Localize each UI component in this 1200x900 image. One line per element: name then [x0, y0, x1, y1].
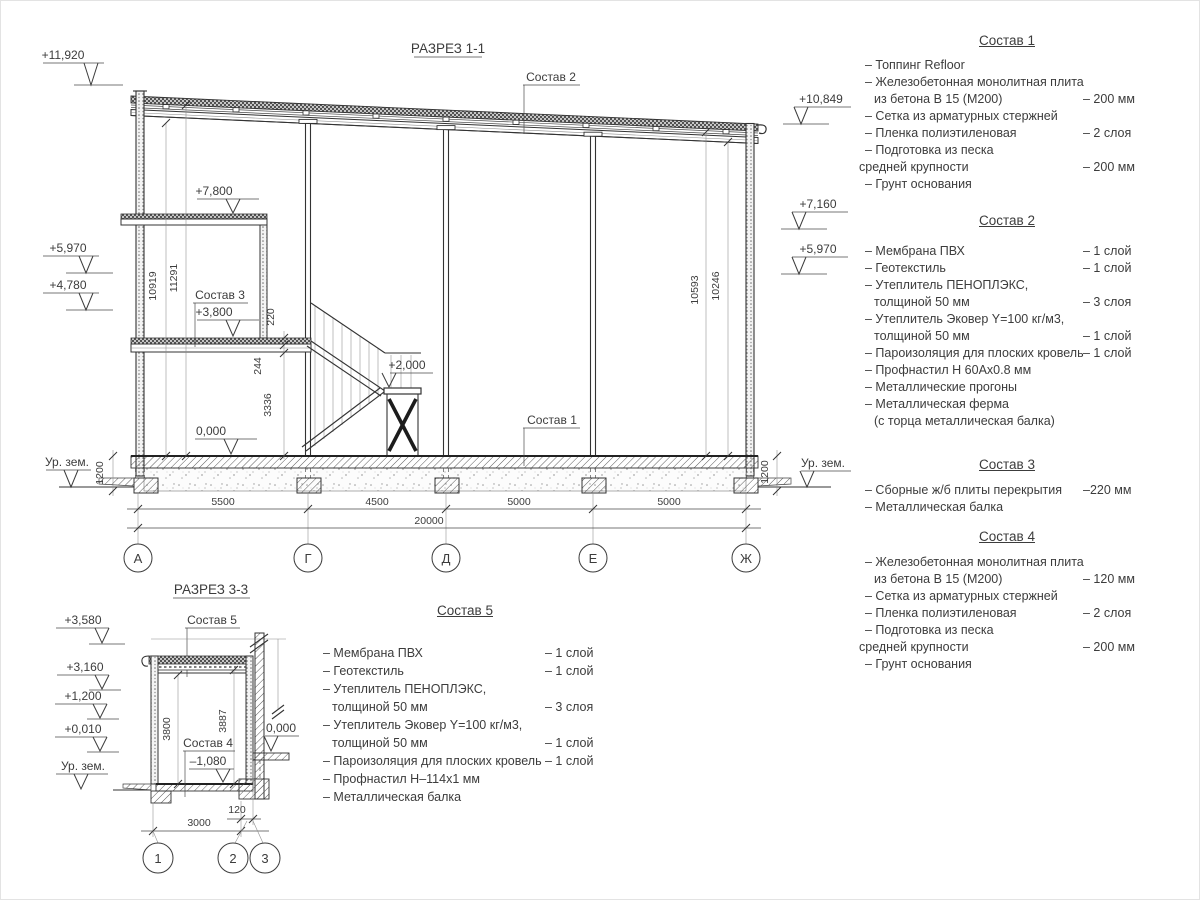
annex-gutter-hook [142, 656, 149, 666]
list-item: толщиной 50 мм– 3 слоя [317, 698, 613, 716]
ground-label-left: Ур. зем. [45, 455, 89, 469]
section-3-3-title: РАЗРЕЗ 3-3 [174, 582, 248, 597]
leader-sostav5: Состав 5 [187, 613, 237, 627]
section-1-1: РАЗРЕЗ 1-1 [42, 41, 851, 572]
stair-flight-lower [306, 392, 384, 451]
wall-right [746, 124, 754, 477]
elev-3800: +3,800 [195, 305, 232, 319]
annex-footing-right [239, 779, 269, 799]
section-1-1-title: РАЗРЕЗ 1-1 [411, 41, 485, 56]
list-item: – Сетка из арматурных стержней [859, 588, 1155, 605]
list-item: – Подготовка из песка [859, 142, 1155, 159]
elev-left-5970: +5,970 [49, 241, 86, 255]
landing-platform [384, 388, 421, 394]
axis-label-g: Г [304, 551, 311, 566]
dim-4500: 4500 [365, 496, 389, 508]
main-floor-stub [253, 753, 289, 760]
axis-label-2: 2 [229, 851, 236, 866]
axis-label-e: Е [589, 551, 598, 566]
list-item: – Пленка полиэтиленовая– 2 слоя [859, 605, 1155, 622]
list-item: толщиной 50 мм– 1 слой [317, 734, 613, 752]
annex-structure [113, 633, 289, 803]
ground-floor [59, 456, 831, 493]
list-item: – Утеплитель Эковер Y=100 кг/м3, [859, 311, 1155, 328]
list-item: – Геотекстиль– 1 слой [317, 662, 613, 680]
wall-left [136, 91, 144, 476]
list-item: – Геотекстиль– 1 слой [859, 260, 1155, 277]
elevations-right-s11: +10,849 +7,160 +5,970 Ур. зем. 1200 [759, 92, 851, 496]
ground-label-right: Ур. зем. [801, 456, 845, 470]
list-item: – Пароизоляция для плоских кровель– 1 сл… [859, 345, 1155, 362]
composition-4-title: Состав 4 [859, 529, 1155, 544]
dim-10246: 10246 [710, 271, 722, 300]
list-item: из бетона В 15 (М200)– 200 мм [859, 91, 1155, 108]
composition-1-list: Состав 1 – Топпинг Refloor – Железобетон… [859, 33, 1155, 193]
list-item: – Утеплитель ПЕНОПЛЭКС, [317, 680, 613, 698]
list-item: – Грунт основания [859, 176, 1155, 193]
list-item: – Грунт основания [859, 656, 1155, 673]
composition-2-list: Состав 2 – Мембрана ПВХ– 1 слой – Геотек… [859, 213, 1155, 430]
ground-label-s33: Ур. зем. [61, 759, 105, 773]
list-item: средней крупности– 200 мм [859, 159, 1155, 176]
list-item: – Мембрана ПВХ– 1 слой [859, 243, 1155, 260]
list-item: – Металлическая ферма [859, 396, 1155, 413]
elev-1200: +1,200 [64, 689, 101, 703]
axis-label-1: 1 [154, 851, 161, 866]
list-item: толщиной 50 мм– 1 слой [859, 328, 1155, 345]
dim-5500: 5500 [211, 496, 235, 508]
list-item: – Пленка полиэтиленовая– 2 слоя [859, 125, 1155, 142]
elev-right-5970: +5,970 [799, 242, 836, 256]
composition-2-title: Состав 2 [859, 213, 1155, 228]
main-building-wall [255, 633, 264, 799]
leader-sostav1: Состав 1 [527, 413, 577, 427]
annex-roof [149, 656, 253, 664]
dim-120: 120 [228, 804, 246, 816]
column-d [437, 126, 455, 456]
elev-m1080: –1,080 [190, 754, 227, 768]
dim-220: 220 [265, 308, 277, 326]
vertical-dims-s11: 10919 11291 10593 10246 220 244 3336 [147, 101, 732, 460]
list-item: – Металлические прогоны [859, 379, 1155, 396]
annex-wall-left [151, 656, 158, 784]
list-item: – Мембрана ПВХ– 1 слой [317, 644, 613, 662]
list-item: – Утеплитель ПЕНОПЛЭКС, [859, 277, 1155, 294]
list-item: – Пароизоляция для плоских кровель– 1 сл… [317, 752, 613, 770]
elev-11920: +11,920 [42, 48, 85, 62]
leader-sostav2: Состав 2 [526, 70, 576, 84]
dim-10593: 10593 [689, 275, 701, 304]
list-item: – Профнастил Н 60Ах0.8 мм [859, 362, 1155, 379]
bottom-dims-s11: 5500 4500 5000 5000 20000 А [124, 493, 761, 572]
column-e [584, 132, 602, 456]
composition-5-list: Состав 5 – Мембрана ПВХ– 1 слой – Геотек… [317, 603, 613, 806]
list-item: толщиной 50 мм– 3 слоя [859, 294, 1155, 311]
dim-5000a: 5000 [507, 496, 531, 508]
composition-1-title: Состав 1 [859, 33, 1155, 48]
railing-top [311, 303, 385, 353]
dim-3800: 3800 [161, 717, 173, 741]
roof-gutter-hook [758, 125, 766, 134]
dim-1200-right: 1200 [759, 460, 771, 484]
dim-3887: 3887 [217, 709, 229, 733]
list-item: средней крупности– 200 мм [859, 639, 1155, 656]
elev-0000: 0,000 [196, 424, 226, 438]
list-item: – Металлическая балка [859, 499, 1155, 516]
list-item: – Железобетонная монолитная плита [859, 74, 1155, 91]
list-item: – Подготовка из песка [859, 622, 1155, 639]
grid-axes-s11: А Г Д Е Ж [124, 544, 760, 572]
annex-floor [156, 784, 253, 791]
dim-10919: 10919 [147, 271, 159, 300]
composition-3-list: Состав 3 – Сборные ж/б плиты перекрытия–… [859, 457, 1155, 516]
list-item: – Утеплитель Эковер Y=100 кг/м3, [317, 716, 613, 734]
stairs [302, 303, 421, 456]
elev-0000-s33: 0,000 [266, 721, 296, 735]
elev-3160: +3,160 [66, 660, 103, 674]
axis-label-zh: Ж [740, 551, 752, 566]
column-g [299, 119, 317, 456]
walls-columns [133, 91, 754, 476]
elev-right-7160: +7,160 [799, 197, 836, 211]
dim-1200-left: 1200 [94, 461, 106, 485]
list-item: – Сборные ж/б плиты перекрытия–220 мм [859, 482, 1155, 499]
floor-slab [131, 456, 758, 468]
axis-label-d: Д [442, 551, 451, 566]
dim-11291: 11291 [168, 264, 180, 293]
elev-7800: +7,800 [195, 184, 232, 198]
list-item: – Сетка из арматурных стержней [859, 108, 1155, 125]
annex-apron [123, 784, 151, 790]
list-item: (с торца металлическая балка) [859, 413, 1155, 430]
leader-sostav4: Состав 4 [183, 736, 233, 750]
elevations-left-s11: +11,920 +5,970 +4,780 Ур. зем. 1200 [42, 48, 123, 496]
axis-label-a: А [134, 551, 143, 566]
leader-sostav3: Состав 3 [195, 288, 245, 302]
dim-3000: 3000 [187, 817, 211, 829]
annex-wall-right [246, 656, 253, 784]
list-item: – Железобетонная монолитная плита [859, 554, 1155, 571]
dim-20000: 20000 [414, 515, 443, 527]
dim-3336: 3336 [262, 393, 274, 417]
elev-0010: +0,010 [64, 722, 101, 736]
elev-right-10849: +10,849 [799, 92, 843, 106]
list-item: – Топпинг Refloor [859, 57, 1155, 74]
list-item: из бетона В 15 (М200)– 120 мм [859, 571, 1155, 588]
composition-5-title: Состав 5 [317, 603, 613, 618]
vertical-dims-s33: 3800 3887 [161, 666, 238, 788]
elev-2000: +2,000 [388, 358, 425, 372]
dim-244: 244 [252, 357, 264, 375]
list-item: – Профнастил Н–114х1 мм [317, 770, 613, 788]
axis-label-3: 3 [261, 851, 268, 866]
drawing-sheet: РАЗРЕЗ 1-1 [0, 0, 1200, 900]
elev-3580: +3,580 [64, 613, 101, 627]
list-item: – Металлическая балка [317, 788, 613, 806]
stair-flight-upper [311, 341, 385, 391]
annex-footing-left [151, 791, 171, 803]
grid-axes-s33: 1 2 3 [143, 843, 280, 873]
dim-5000b: 5000 [657, 496, 681, 508]
section-3-3: РАЗРЕЗ 3-3 Состав 5 [55, 582, 299, 873]
composition-3-title: Состав 3 [859, 457, 1155, 472]
elev-left-4780: +4,780 [49, 278, 86, 292]
composition-4-list: Состав 4 – Железобетонная монолитная пли… [859, 529, 1155, 673]
